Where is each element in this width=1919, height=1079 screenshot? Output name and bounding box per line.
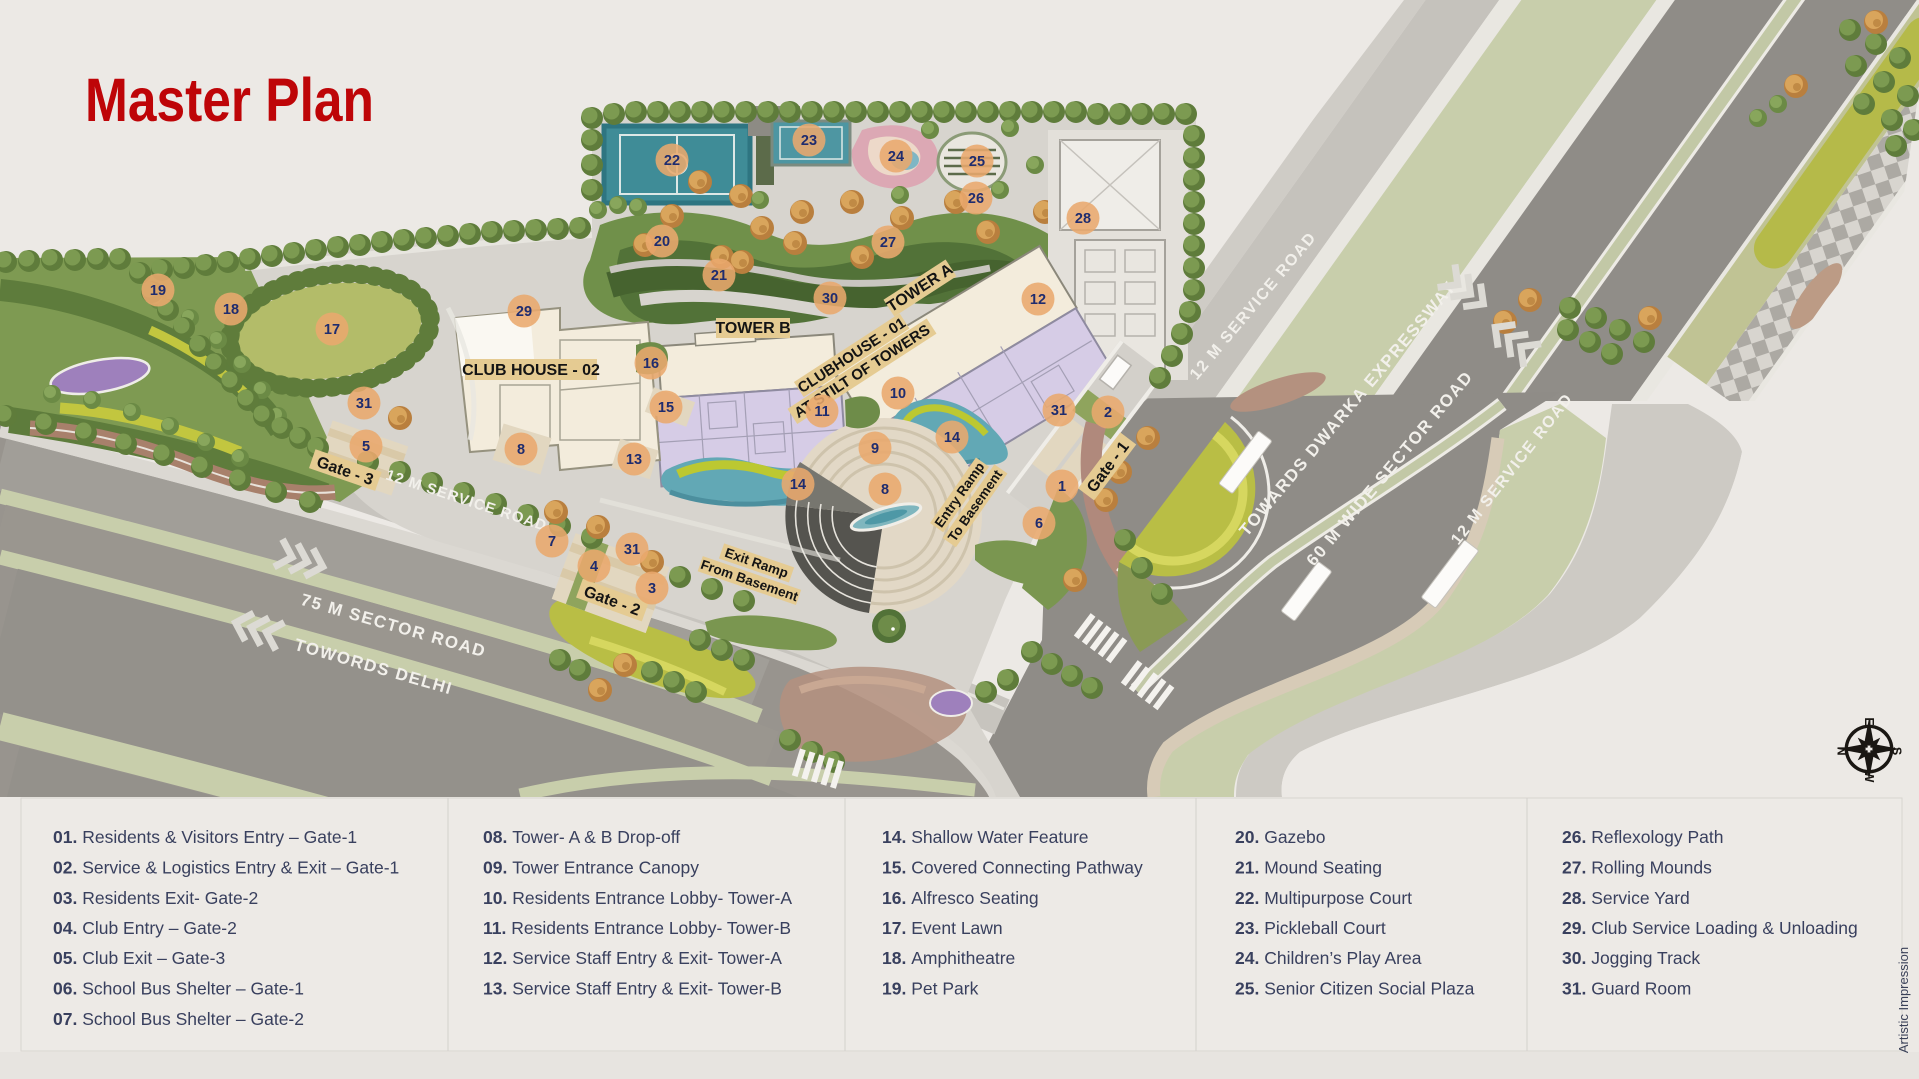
svg-text:27. Rolling Mounds: 27. Rolling Mounds <box>1562 858 1712 878</box>
svg-text:25: 25 <box>969 154 985 170</box>
svg-text:8: 8 <box>517 442 525 458</box>
svg-text:24: 24 <box>888 149 904 165</box>
svg-text:11: 11 <box>814 404 829 420</box>
svg-text:05. Club Exit – Gate-3: 05. Club Exit – Gate-3 <box>53 948 225 968</box>
svg-text:17: 17 <box>324 322 340 338</box>
svg-text:4: 4 <box>590 559 598 575</box>
svg-text:26. Reflexology Path: 26. Reflexology Path <box>1562 827 1724 847</box>
svg-text:16. Alfresco Seating: 16. Alfresco Seating <box>882 888 1039 908</box>
svg-text:6: 6 <box>1035 516 1043 532</box>
svg-text:23. Pickleball Court: 23. Pickleball Court <box>1235 918 1386 938</box>
svg-text:02. Service & Logistics Entry: 02. Service & Logistics Entry & Exit – G… <box>53 858 399 878</box>
svg-text:14: 14 <box>790 477 806 493</box>
svg-text:01. Residents & Visitors Entry: 01. Residents & Visitors Entry – Gate-1 <box>53 827 357 847</box>
svg-text:07. School Bus Shelter – Gate-: 07. School Bus Shelter – Gate-2 <box>53 1009 304 1029</box>
svg-text:31: 31 <box>356 396 372 412</box>
svg-text:18. Amphitheatre: 18. Amphitheatre <box>882 948 1015 968</box>
svg-text:11. Residents Entrance Lobby-: 11. Residents Entrance Lobby- Tower-B <box>483 918 791 938</box>
svg-text:18: 18 <box>223 302 239 318</box>
svg-text:Artistic Impression: Artistic Impression <box>1896 947 1911 1053</box>
svg-text:25. Senior Citizen Social Plaz: 25. Senior Citizen Social Plaza <box>1235 979 1475 999</box>
svg-text:22. Multipurpose Court: 22. Multipurpose Court <box>1235 888 1412 908</box>
svg-text:Master Plan: Master Plan <box>85 66 374 134</box>
svg-text:CLUB HOUSE - 02: CLUB HOUSE - 02 <box>462 362 600 379</box>
svg-text:21. Mound Seating: 21. Mound Seating <box>1235 858 1382 878</box>
svg-text:06. School Bus Shelter – Gate-: 06. School Bus Shelter – Gate-1 <box>53 979 304 999</box>
svg-text:27: 27 <box>880 235 896 251</box>
svg-text:10. Residents Entrance Lobby-: 10. Residents Entrance Lobby- Tower-A <box>483 888 792 908</box>
svg-text:7: 7 <box>548 534 556 550</box>
svg-text:29. Club Service Loading & Unl: 29. Club Service Loading & Unloading <box>1562 918 1858 938</box>
svg-text:10: 10 <box>890 386 906 402</box>
svg-text:W: W <box>1862 771 1876 783</box>
svg-text:19. Pet Park: 19. Pet Park <box>882 979 979 999</box>
svg-text:N: N <box>1835 746 1849 755</box>
svg-text:17. Event Lawn: 17. Event Lawn <box>882 918 1003 938</box>
svg-text:15. Covered Connecting Pathway: 15. Covered Connecting Pathway <box>882 858 1143 878</box>
svg-text:31. Guard Room: 31. Guard Room <box>1562 979 1691 999</box>
svg-text:20: 20 <box>654 234 670 250</box>
svg-text:28. Service Yard: 28. Service Yard <box>1562 888 1690 908</box>
svg-text:14. Shallow Water Feature: 14. Shallow Water Feature <box>882 827 1089 847</box>
svg-text:13. Service Staff Entry & Exit: 13. Service Staff Entry & Exit- Tower-B <box>483 979 782 999</box>
svg-text:03. Residents Exit- Gate-2: 03. Residents Exit- Gate-2 <box>53 888 258 908</box>
svg-text:20. Gazebo: 20. Gazebo <box>1235 827 1326 847</box>
svg-text:28: 28 <box>1075 211 1091 227</box>
svg-text:13: 13 <box>626 452 642 468</box>
svg-text:15: 15 <box>658 400 674 416</box>
svg-text:14: 14 <box>944 430 960 446</box>
svg-text:08. Tower- A & B Drop-off: 08. Tower- A & B Drop-off <box>483 827 680 847</box>
svg-text:E: E <box>1862 717 1876 725</box>
svg-text:31: 31 <box>1051 403 1067 419</box>
svg-text:8: 8 <box>881 482 889 498</box>
svg-text:3: 3 <box>648 581 656 597</box>
svg-text:22: 22 <box>664 153 680 169</box>
svg-text:16: 16 <box>643 356 659 372</box>
svg-text:1: 1 <box>1058 479 1066 495</box>
svg-text:5: 5 <box>362 439 370 455</box>
svg-text:23: 23 <box>801 133 817 149</box>
svg-text:21: 21 <box>711 268 727 284</box>
svg-text:04. Club Entry – Gate-2: 04. Club Entry – Gate-2 <box>53 918 237 938</box>
svg-text:30. Jogging Track: 30. Jogging Track <box>1562 948 1700 968</box>
svg-text:09. Tower Entrance Canopy: 09. Tower Entrance Canopy <box>483 858 699 878</box>
svg-text:24. Children’s Play Area: 24. Children’s Play Area <box>1235 948 1422 968</box>
svg-text:29: 29 <box>516 304 532 320</box>
svg-text:2: 2 <box>1104 405 1112 421</box>
svg-text:30: 30 <box>822 291 838 307</box>
svg-text:12: 12 <box>1030 292 1046 308</box>
svg-text:12. Service Staff Entry & Exit: 12. Service Staff Entry & Exit- Tower-A <box>483 948 782 968</box>
svg-text:S: S <box>1890 747 1904 755</box>
svg-text:31: 31 <box>624 542 640 558</box>
svg-text:9: 9 <box>871 441 879 457</box>
svg-text:26: 26 <box>968 191 984 207</box>
svg-text:TOWER B: TOWER B <box>715 320 790 337</box>
svg-text:19: 19 <box>150 283 166 299</box>
